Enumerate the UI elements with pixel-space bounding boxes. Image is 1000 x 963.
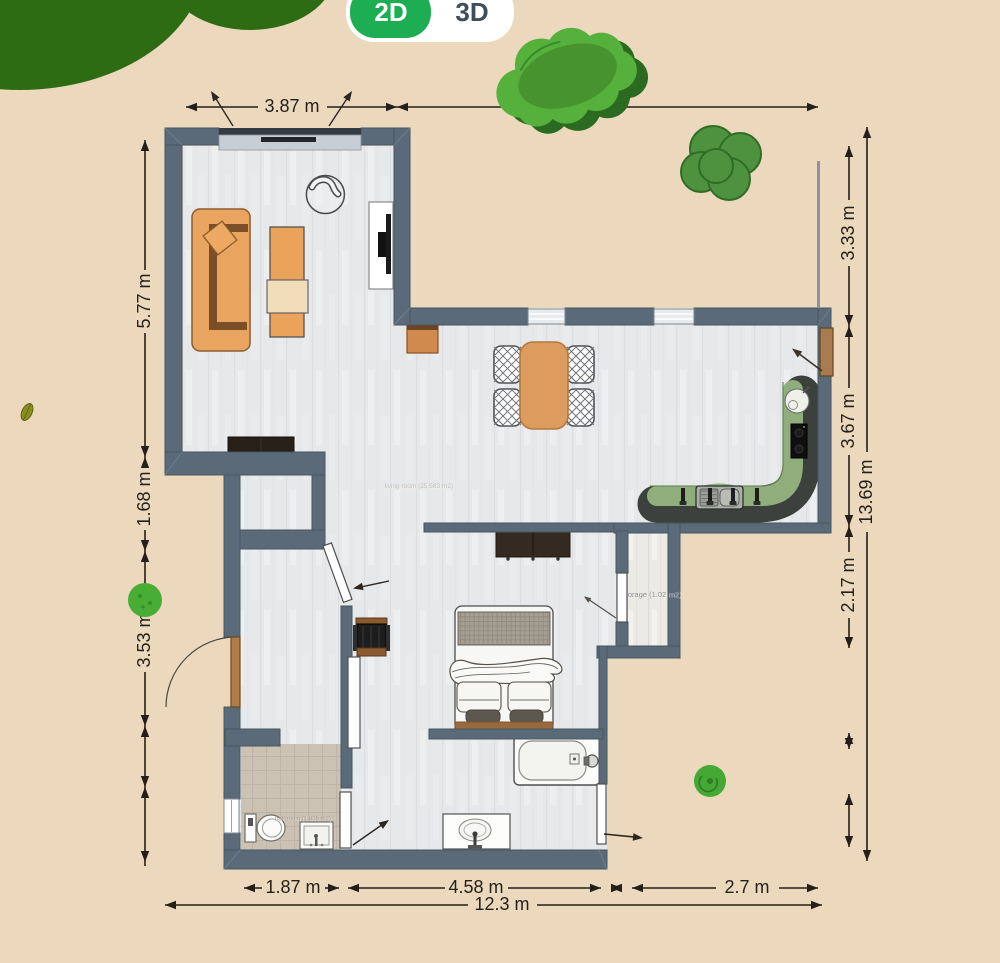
svg-text:Storage (1.02 m2): Storage (1.02 m2) — [621, 590, 682, 599]
svg-text:13.69 m: 13.69 m — [856, 459, 876, 524]
svg-text:bathroom (1.805 m2): bathroom (1.805 m2) — [275, 817, 331, 823]
svg-text:3.53 m: 3.53 m — [134, 612, 154, 667]
svg-text:2D: 2D — [374, 0, 407, 27]
svg-text:3.67 m: 3.67 m — [838, 393, 858, 448]
svg-text:12.3 m: 12.3 m — [474, 894, 529, 914]
svg-text:2.7 m: 2.7 m — [724, 877, 769, 897]
svg-text:3.87 m: 3.87 m — [264, 96, 319, 116]
svg-text:2.17 m: 2.17 m — [838, 557, 858, 612]
svg-text:3D: 3D — [455, 0, 488, 27]
svg-text:1.68 m: 1.68 m — [134, 471, 154, 526]
svg-text:3.33 m: 3.33 m — [838, 205, 858, 260]
svg-text:5.77 m: 5.77 m — [134, 273, 154, 328]
svg-text:1.87 m: 1.87 m — [265, 877, 320, 897]
svg-text:living room (25.583 m2): living room (25.583 m2) — [385, 483, 453, 490]
